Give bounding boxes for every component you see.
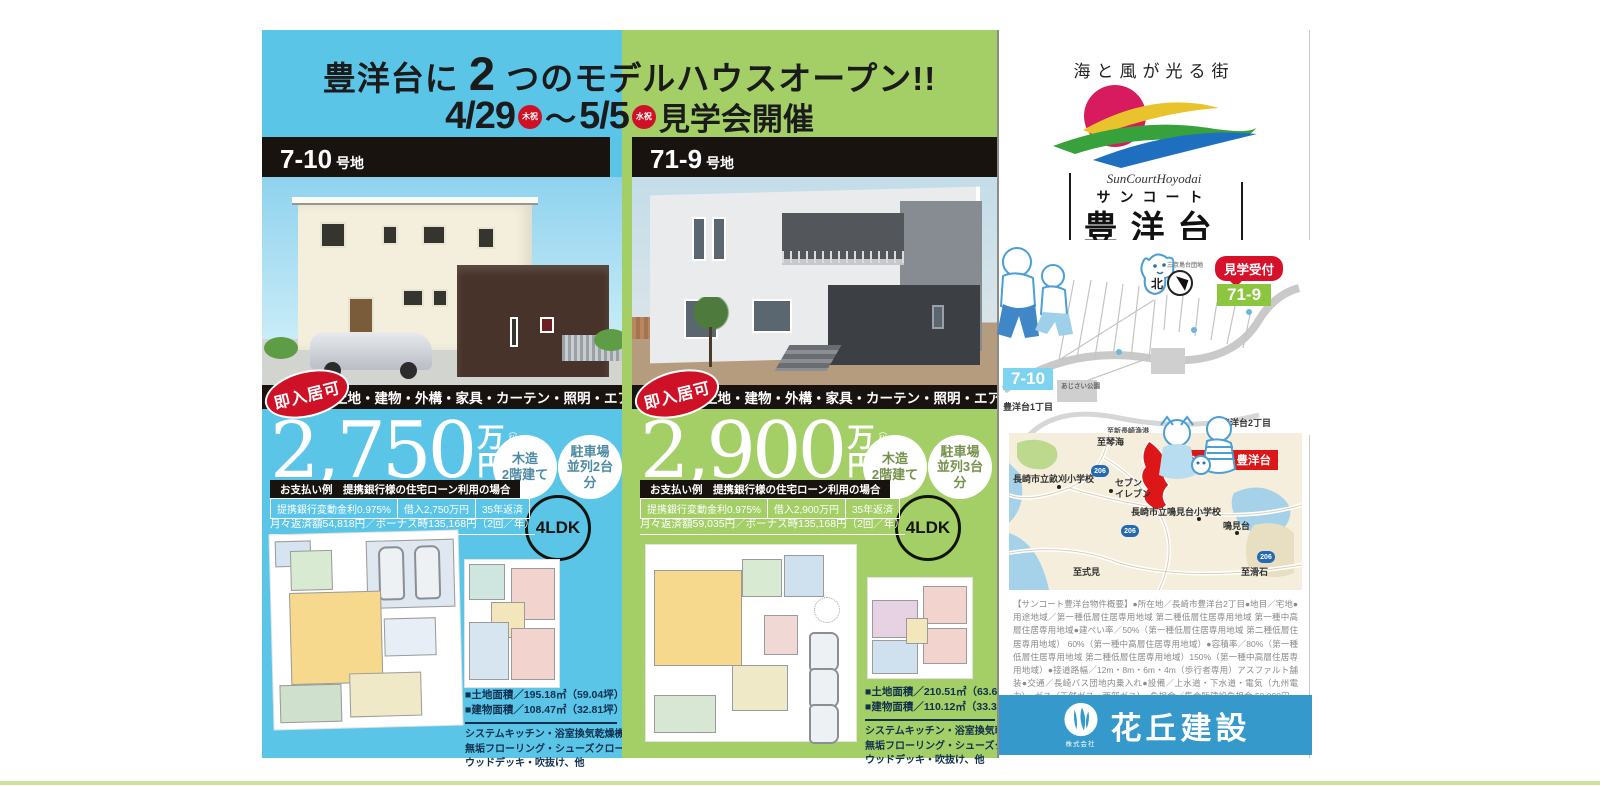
plan-room [290, 550, 333, 591]
lot-label-bar: 7-10 号地 [262, 137, 610, 177]
spec-block: ■土地面積／210.51㎡（63.67坪） ■建物面積／110.12㎡（33.3… [865, 685, 995, 769]
payment-example-title: お支払い例 提携銀行様の住宅ローン利用の場合 [270, 480, 520, 499]
spec-divider [865, 719, 995, 721]
sun-waves-logo [1049, 78, 1261, 170]
price-value: 2,750 [270, 420, 473, 484]
company-logo: 株式会社 [1061, 702, 1101, 748]
building-area: ■建物面積／110.12㎡（33.31坪） [865, 700, 995, 715]
plan-deck [654, 695, 716, 733]
park-area [1151, 348, 1185, 374]
town-poi [1235, 531, 1239, 535]
main-title: 豊洋台に 2 つのモデルハウスオープン!! [262, 46, 997, 101]
lot-7-10-marker: 7-10 [1003, 368, 1053, 390]
route-shield: 206 [1091, 465, 1109, 477]
brand-panel: 海と風が光る街 SunCourtHoyodai サンコート 豊洋台 [997, 30, 1310, 758]
compass-icon [1167, 270, 1193, 296]
car-wheel [400, 362, 417, 379]
route-shield: 206 [1121, 525, 1139, 537]
house-window [402, 289, 424, 307]
plan-room [742, 559, 782, 597]
lot-71-9-marker: 71-9 [1217, 284, 1271, 306]
to-shikimi-label: 至式見 [1073, 565, 1100, 578]
lot-number: 7-10 [280, 144, 332, 175]
plan-car [809, 704, 839, 744]
land-area: ■土地面積／195.18㎡（59.04坪） [465, 688, 617, 703]
parking-badge: 駐車場 並列3台 分 [928, 435, 992, 499]
plan-deck [279, 684, 342, 724]
spec-block: ■土地面積／195.18㎡（59.04坪） ■建物面積／108.47㎡（32.8… [465, 688, 617, 772]
bush [264, 337, 298, 359]
feature-line: 無垢フローリング・シューズクローゼット [865, 740, 995, 755]
ukari-school-label: 長崎市立畝刈小学校 [1013, 472, 1094, 485]
floor-plan-1f [646, 545, 856, 741]
development-site-map: 三京島台団地 北 見学受付 71-9 7-10 あじさい公園 豊洋台1丁目 豊洋… [999, 240, 1312, 435]
school-poi [1197, 517, 1201, 521]
parking-badge: 駐車場 並列2台 分 [558, 435, 622, 499]
to-nameshi-label: 至滑石 [1241, 565, 1268, 578]
plan-room [349, 672, 422, 718]
payment-monthly: 月々返済額59,035円／ボーナス時135,168円（2回／年） [640, 516, 905, 535]
house-window [320, 222, 346, 248]
floor-plan-2f [868, 578, 972, 678]
model-house-photo [262, 177, 622, 385]
plan-room [511, 628, 555, 680]
district-label: 三京島台団地 [1167, 260, 1203, 269]
plan-ldk [289, 591, 383, 685]
annex-window [540, 317, 554, 333]
feature-line: システムキッチン・浴室換気乾燥機 [865, 725, 995, 740]
company-footer: 株式会社 花丘建設 [999, 695, 1312, 755]
kids-illustration [1151, 415, 1247, 483]
plan-car [414, 545, 441, 600]
house-window [422, 225, 446, 245]
north-indicator: 北 [1151, 270, 1193, 296]
company-type: 株式会社 [1066, 738, 1096, 748]
date-from: 4/29 [445, 95, 515, 138]
north-label: 北 [1151, 275, 1163, 292]
holiday-badge: 水祝 [632, 105, 656, 129]
plan-room [923, 586, 967, 624]
family-couple-illustration [989, 242, 1077, 350]
park-label: あじさい公園 [1061, 383, 1100, 391]
price-block: 2,900 万 円 （税込） [640, 420, 889, 484]
plan-room [384, 617, 437, 656]
lot-suffix: 号地 [706, 153, 734, 173]
balcony-railing [782, 251, 904, 263]
page-bottom-rule [0, 781, 1600, 785]
plan-car [809, 668, 839, 708]
plan-tree [814, 597, 840, 623]
brand-script-name: SunCourtHoyodai [999, 171, 1309, 187]
plan-room [764, 615, 798, 655]
house-window [382, 225, 398, 245]
feature-line: ウッドデッキ・吹抜け、他 [465, 757, 617, 772]
house-window [432, 289, 448, 307]
house-window [752, 299, 792, 333]
building-area: ■建物面積／108.47㎡（32.81坪） [465, 703, 617, 718]
payment-example-title: お支払い例 提携銀行様の住宅ローン利用の場合 [640, 480, 890, 499]
plan-car [809, 632, 839, 672]
flyer: 7-10 号地 即入居可 土地・建物・外構・家具・カーテン・照明・エアコン含む [262, 30, 1310, 758]
route-shield: 206 [1257, 551, 1275, 563]
price-block: 2,750 万 円 （税込） [270, 420, 519, 484]
land-area: ■土地面積／210.51㎡（63.67坪） [865, 685, 995, 700]
lot-label-bar: 71-9 号地 [632, 137, 997, 177]
store-poi [1109, 489, 1113, 493]
plan-car [378, 546, 405, 601]
school-poi [1057, 485, 1061, 489]
house-window [932, 305, 944, 329]
plan-room [732, 665, 788, 711]
house-window [712, 217, 726, 261]
annex-window [510, 317, 518, 347]
date-to: 5/5 [579, 95, 629, 138]
header: 豊洋台に 2 つのモデルハウスオープン!! 4/29 木祝 〜 5/5 水祝 見… [262, 30, 997, 140]
reception-badge: 見学受付 [1215, 256, 1283, 281]
floor-plan-1f [269, 531, 462, 730]
plan-room [872, 640, 918, 674]
event-label: 見学会開催 [659, 94, 814, 139]
feature-line: システムキッチン・浴室換気乾燥機 [465, 728, 617, 743]
house-roof [292, 197, 538, 205]
plan-hall [906, 618, 928, 644]
plan-room [469, 622, 509, 680]
floor-plan-2f [465, 560, 559, 687]
price-value: 2,900 [640, 420, 843, 484]
feature-line: 無垢フローリング・シューズクローゼット [465, 743, 617, 758]
plan-room [469, 564, 505, 600]
to-kinkai-label: 至琴海 [1097, 435, 1124, 448]
chome1-label: 豊洋台1丁目 [1003, 400, 1053, 413]
holiday-badge: 木祝 [518, 105, 542, 129]
bush [594, 329, 622, 351]
lot-suffix: 号地 [336, 153, 364, 173]
narumidai-school-label: 長崎市立鳴見台小学校 [1131, 505, 1221, 518]
company-logo-icon [1062, 702, 1100, 737]
plan-room [784, 555, 824, 597]
lot-number: 71-9 [650, 144, 702, 175]
house-base-dark [828, 285, 980, 365]
model-house-photo [632, 177, 997, 385]
company-name: 花丘建設 [1111, 703, 1251, 748]
event-dates: 4/29 木祝 〜 5/5 水祝 見学会開催 [262, 94, 997, 139]
plan-room [923, 628, 967, 664]
tree-trunk [709, 327, 712, 367]
house-window [692, 217, 706, 261]
spec-divider [465, 722, 617, 724]
plan-ldk [654, 570, 742, 666]
convenience-store-label: セブン イレブン [1115, 478, 1151, 500]
house-window [477, 227, 495, 249]
feature-line: ウッドデッキ・吹抜け、他 [865, 754, 995, 769]
tilde: 〜 [545, 94, 576, 139]
